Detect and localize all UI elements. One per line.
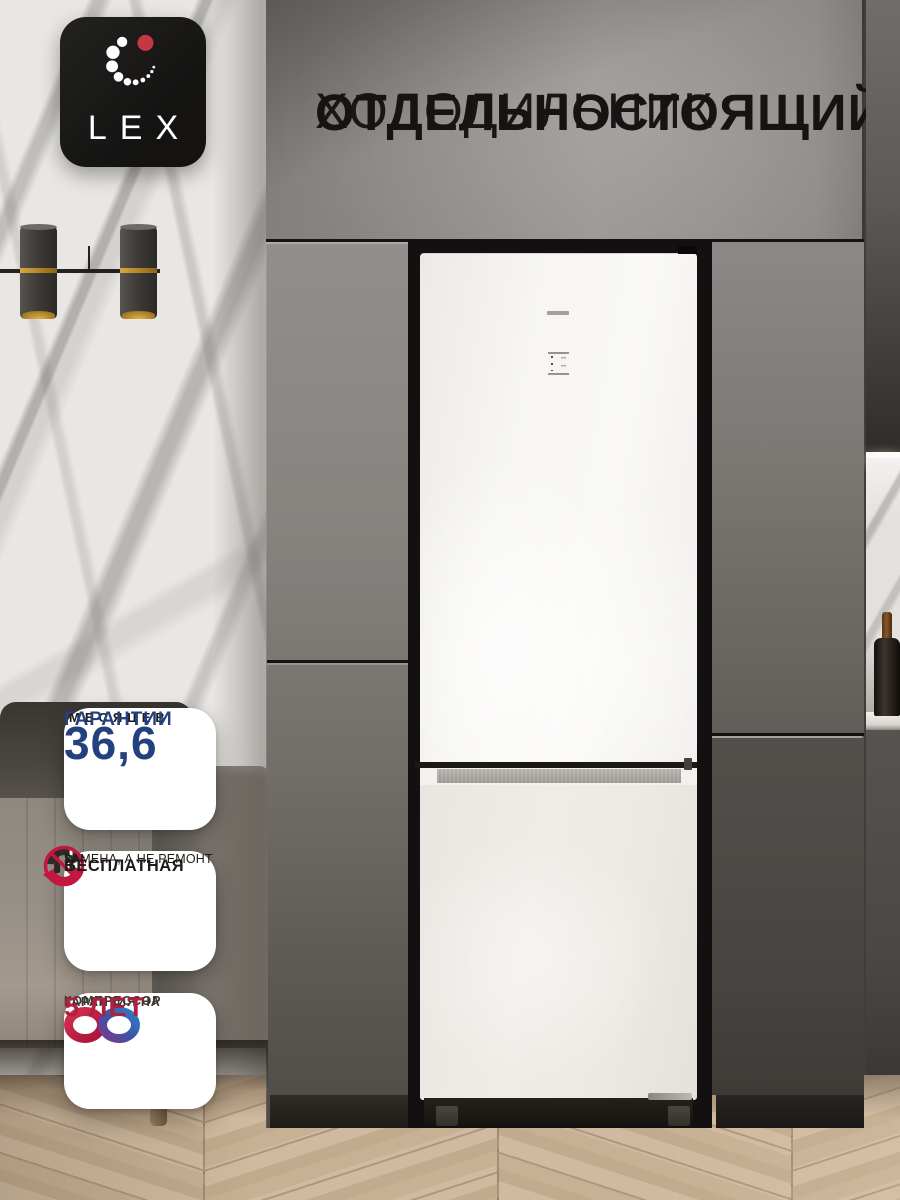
refrigerator-bottom-hinge	[648, 1093, 692, 1100]
refrigerator-base	[424, 1098, 693, 1126]
lamp-top-cap	[120, 224, 157, 230]
lamp-glow	[122, 311, 155, 319]
base-cabinet-right	[866, 730, 900, 1128]
refrigerator-top-hinge	[678, 246, 697, 254]
refrigerator-freezer-door	[420, 785, 697, 1100]
product-title-line2: ОТДЕЛЬНОСТОЯЩИЙ	[315, 84, 885, 142]
cabinet-right-of-niche	[712, 242, 864, 1128]
cabinet-seam-highlight	[267, 663, 409, 665]
cabinet-plinth	[270, 1095, 409, 1128]
product-scene: ХОЛОДИЛЬНИК ОТДЕЛЬНОСТОЯЩИЙ	[0, 0, 900, 1200]
refrigerator-control-panel	[548, 352, 569, 375]
cabinet-left-of-niche	[266, 242, 408, 1128]
pendant-lamp	[20, 226, 57, 319]
lamp-gold-ring	[120, 268, 157, 273]
compressor-warranty-badge: ГАРАНТИЯ НА КОМПРЕССОР 5 ЛЕТ	[64, 993, 216, 1109]
cabinet-panel-lower	[712, 738, 864, 1095]
pendant-lamp-wire	[88, 246, 90, 271]
replacement-subtitle: ЗАМЕНА, А НЕ РЕМОНТ	[64, 852, 213, 866]
refrigerator-foot	[436, 1106, 458, 1126]
refrigerator-logo-mark	[547, 311, 569, 315]
bottle	[874, 612, 900, 716]
refrigerator-handle-strip	[420, 768, 697, 785]
lamp-top-cap	[20, 224, 57, 230]
lamp-gold-ring	[20, 268, 57, 273]
refrigerator-middle-hinge	[684, 758, 692, 770]
replacement-badge: БЕСПЛАТНАЯ ЗАМЕНА, А НЕ РЕМОНТ	[64, 851, 216, 971]
kitchen-wall-panel: ХОЛОДИЛЬНИК ОТДЕЛЬНОСТОЯЩИЙ	[266, 0, 864, 242]
cabinet-plinth	[716, 1095, 864, 1128]
lex-logo-dots-icon	[101, 31, 165, 95]
refrigerator-handle-recess	[437, 769, 681, 783]
cabinet-panel-upper	[712, 242, 864, 733]
bottle-body	[874, 638, 900, 716]
warranty-badge: 36,6 МЕСЯЦЕВ ГАРАНТИИ	[64, 708, 216, 830]
pendant-lamp	[120, 226, 157, 319]
brand-logo-badge: LEX	[60, 17, 206, 167]
refrigerator-foot	[668, 1106, 690, 1126]
compressor-value: 5 ЛЕТ	[64, 993, 145, 1021]
brand-logo-text: LEX	[60, 109, 206, 148]
warranty-label: ГАРАНТИИ	[64, 709, 173, 731]
lamp-glow	[22, 311, 55, 319]
refrigerator-upper-door	[420, 253, 697, 762]
upper-cabinet-right	[866, 0, 900, 458]
